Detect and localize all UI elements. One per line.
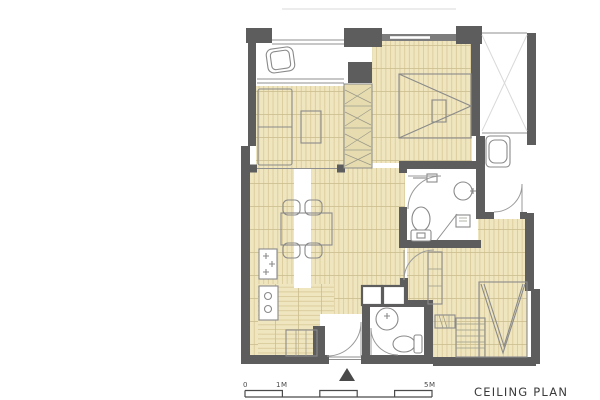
master-window-glass	[390, 36, 430, 39]
wall-segment	[399, 161, 407, 173]
wall-segment	[476, 212, 494, 219]
cabinet-icon	[383, 286, 405, 305]
wall-segment	[531, 289, 540, 364]
wall-segment	[433, 357, 536, 366]
ceiling-plan-page: 0 1M 5M CEILING PLAN	[0, 0, 600, 400]
wall-segment	[348, 62, 372, 83]
wall-segment	[525, 213, 534, 291]
door-swing	[494, 184, 522, 212]
toilet-tank	[411, 230, 431, 241]
fridge-icon	[362, 286, 382, 305]
wall-segment	[424, 300, 433, 358]
wall-segment	[249, 165, 257, 173]
wall-segment	[471, 43, 480, 136]
kitchen-counter-icon	[259, 286, 278, 320]
ceiling-plan-drawing: 0 1M 5M CEILING PLAN	[0, 0, 600, 400]
wall-segment	[241, 146, 250, 364]
scale-bar: 0 1M 5M	[243, 381, 436, 397]
wardrobe	[344, 84, 372, 168]
plan-title: CEILING PLAN	[474, 385, 568, 399]
entry-threshold	[329, 357, 361, 360]
wall-segment	[399, 161, 476, 169]
wall-segment	[248, 30, 256, 146]
void-cross-lines	[482, 35, 527, 131]
toilet-icon	[412, 207, 430, 231]
scale-label-0: 0	[243, 381, 248, 389]
scale-label-1m: 1M	[276, 381, 288, 389]
bedroom-2-ceiling-upper	[478, 219, 527, 248]
entry-marker-icon	[339, 368, 355, 381]
ceiling-beam-strip	[294, 169, 311, 288]
balcony	[265, 46, 295, 74]
toilet-icon	[393, 336, 415, 352]
balcony-door-line	[257, 79, 344, 83]
wall-segment	[476, 136, 485, 216]
wall-segment	[456, 26, 482, 44]
wall-segment	[344, 28, 382, 47]
toilet-tank	[414, 335, 422, 353]
wall-segment	[527, 33, 536, 145]
wall-segment	[361, 355, 433, 364]
scale-bar-steps	[245, 391, 432, 398]
wall-segment	[362, 300, 370, 358]
service-ledge	[482, 35, 527, 212]
scale-label-5m: 5M	[424, 381, 436, 389]
washing-machine-icon	[486, 136, 510, 167]
master-bedroom-ceiling	[372, 40, 472, 163]
wall-segment	[520, 212, 527, 219]
wall-segment	[399, 240, 481, 248]
balcony-window-line	[272, 40, 344, 44]
